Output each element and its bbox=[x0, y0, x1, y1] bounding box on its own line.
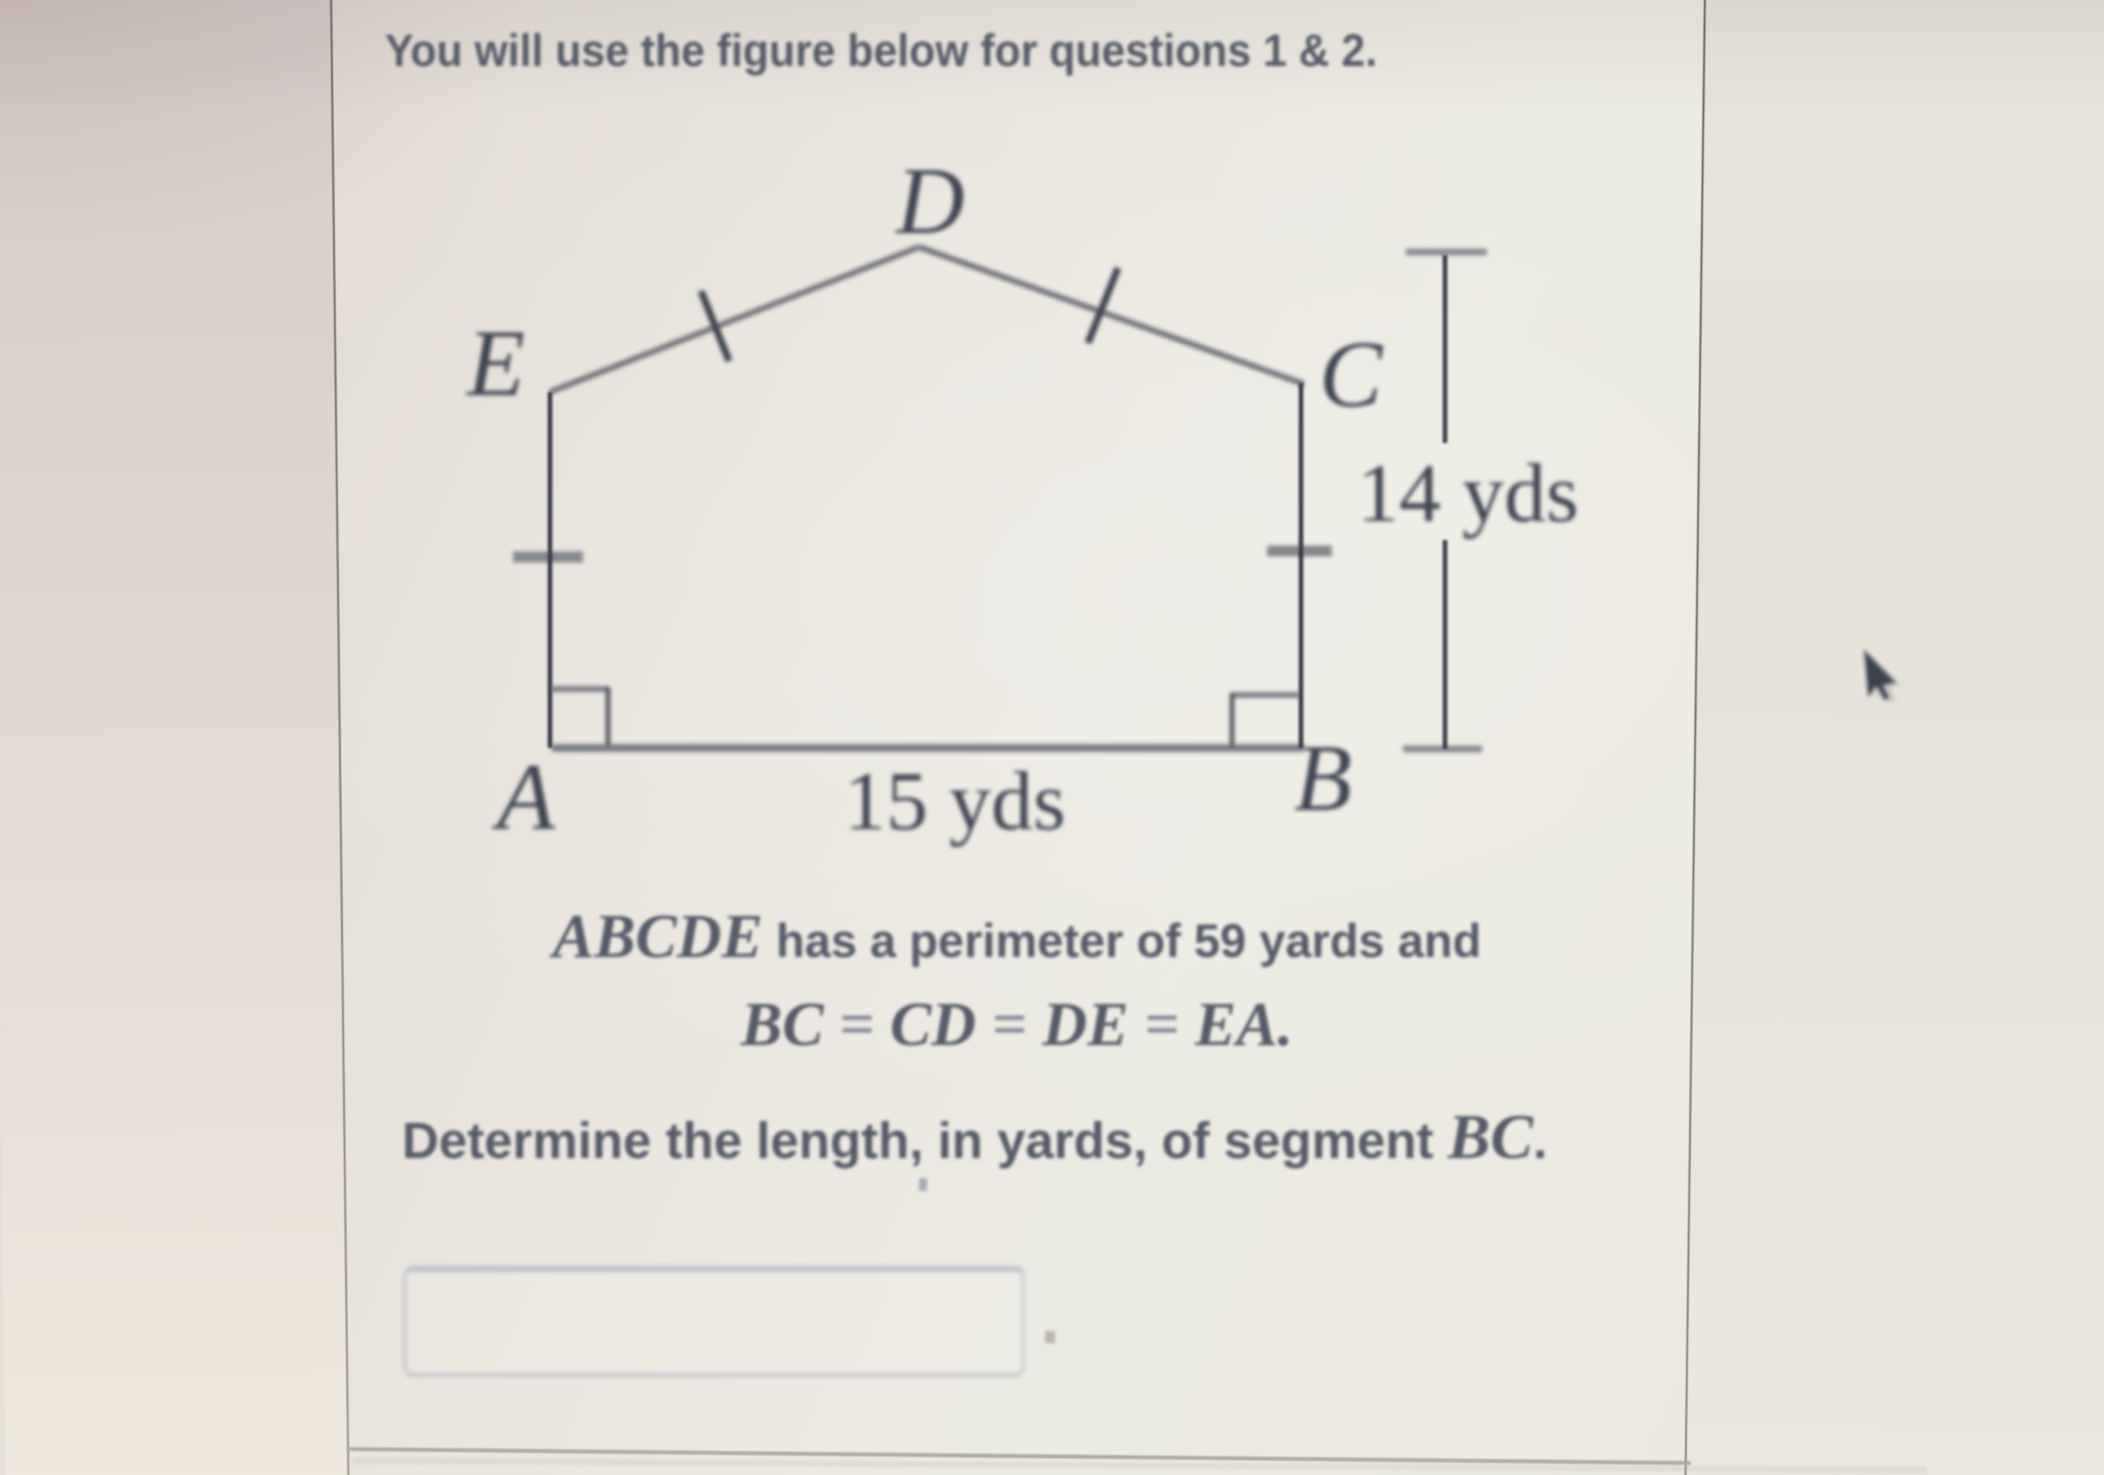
svg-text:E: E bbox=[465, 310, 525, 416]
svg-text:C: C bbox=[1319, 321, 1384, 427]
svg-text:15 yds: 15 yds bbox=[844, 755, 1066, 848]
svg-text:14 yds: 14 yds bbox=[1357, 447, 1579, 540]
svg-text:B: B bbox=[1294, 725, 1352, 831]
svg-text:A: A bbox=[491, 744, 556, 850]
svg-text:D: D bbox=[894, 148, 965, 254]
